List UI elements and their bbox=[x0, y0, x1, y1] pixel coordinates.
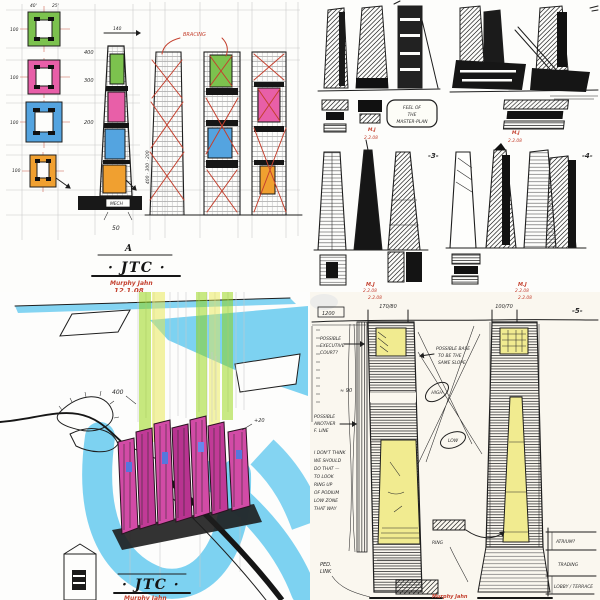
note-line: THAT WAY bbox=[314, 506, 337, 512]
base-dim: 50 bbox=[112, 225, 120, 232]
note-ped-2: LINK bbox=[320, 569, 332, 575]
note-line: I DON'T THINK bbox=[314, 450, 347, 456]
elev-dim-300: 300 bbox=[84, 78, 94, 84]
sig-date-2: 2.2.08 bbox=[508, 138, 522, 144]
group3-label: -3- bbox=[428, 152, 439, 160]
dim-left-tower: 170/80 bbox=[379, 304, 397, 310]
quadrant-tower-sections: 2.2.08 2.2.08 1200 170/80 100/70 -5- POS… bbox=[310, 292, 600, 600]
sheet-number: -5- bbox=[572, 307, 583, 315]
firm-name: Murphy Jahn bbox=[110, 280, 153, 287]
margin-note-atrium: ATRIUM? bbox=[555, 539, 576, 545]
note-line: RING UP bbox=[314, 482, 333, 488]
yellow-shaft bbox=[209, 292, 220, 432]
margin-note-trading: TRADING bbox=[558, 562, 579, 568]
project-title: · JTC · bbox=[108, 260, 166, 276]
braced-tower-strips: BRACING bbox=[145, 32, 302, 215]
box-note-line3: MASTER-PLAN bbox=[396, 119, 428, 125]
note-line: LOW ZONE bbox=[314, 498, 338, 504]
signature-3: M.J bbox=[366, 282, 375, 288]
top-date-left: 2.2.08 bbox=[368, 295, 382, 301]
yellow-shaft bbox=[152, 292, 165, 442]
floor-dim-3: 100 bbox=[10, 120, 19, 126]
firm-name: Murphy Jahn bbox=[124, 595, 167, 600]
note-exec-1: POSSIBLE bbox=[320, 336, 341, 342]
elev-dim-200: 200 bbox=[84, 120, 94, 126]
green-shaft bbox=[222, 292, 233, 420]
series-letter: A bbox=[124, 244, 132, 254]
podium-label: MECH bbox=[110, 201, 124, 207]
box-note-line2: THE bbox=[408, 112, 417, 118]
floor-plan-blue bbox=[26, 102, 62, 142]
plan-dim-25: 25' bbox=[52, 3, 59, 9]
quadrant-aerial-sketch: 400 +20 · JTC · Murphy Jahn 12.1.08 bbox=[0, 292, 310, 600]
word-ring: RING bbox=[432, 540, 444, 546]
datum-label: 1200 bbox=[322, 311, 335, 317]
note-line: OF PODIUM bbox=[314, 490, 339, 496]
margin-note-lobby: LOBBY / TERRACE bbox=[554, 584, 593, 590]
masterplan-note-box: FEEL OF THE MASTER-PLAN bbox=[387, 100, 437, 127]
green-shaft bbox=[196, 292, 207, 424]
floor-dim-4: 100 bbox=[12, 168, 21, 174]
yellow-window-top bbox=[376, 328, 406, 356]
signature-2: M.J bbox=[512, 130, 520, 136]
dim-20: +20 bbox=[254, 418, 265, 424]
signature-4: M.J bbox=[518, 282, 527, 288]
note-line: WE SHOULD bbox=[314, 458, 342, 464]
dim-right-tower: 100/70 bbox=[495, 304, 513, 310]
base-flare bbox=[478, 547, 550, 592]
note-fline-1: POSSIBLE bbox=[314, 414, 335, 420]
note-fline-2: ANOTHER bbox=[313, 421, 336, 427]
note-exec-2: EXECUTIVE bbox=[320, 343, 345, 349]
elev-dim-400: 400 bbox=[84, 50, 94, 56]
blue-window bbox=[208, 128, 232, 158]
floor-plan-green bbox=[28, 12, 60, 46]
bracing-note: BRACING bbox=[183, 32, 206, 38]
stacked-bars-study bbox=[501, 100, 568, 129]
green-shaft bbox=[139, 292, 151, 434]
note-base-2: TO BE THE bbox=[438, 353, 462, 359]
quadrant-plans-elevations: 40' 25' 100 100 100 100 140 MECH 50 400 … bbox=[0, 0, 310, 292]
oval-low-label: LOW bbox=[448, 438, 459, 444]
hatched-podium-box bbox=[396, 580, 438, 594]
dim-400: 400 bbox=[112, 389, 124, 396]
hatched-label-box bbox=[433, 520, 465, 530]
floor-dim-2: 100 bbox=[10, 75, 19, 81]
yellow-window-top bbox=[500, 328, 528, 354]
top-date-right: 2.2.08 bbox=[518, 295, 532, 301]
note-ped-1: PED. bbox=[320, 562, 332, 568]
signature-1: M.J bbox=[368, 127, 376, 133]
project-title: · JTC · bbox=[122, 577, 180, 593]
floor-plan-pink bbox=[28, 60, 60, 94]
top-width-dim: 140 bbox=[113, 26, 122, 32]
yellow-zone bbox=[378, 440, 420, 544]
oval-high-label: HIGH bbox=[431, 390, 443, 396]
side-dims-rotated: 400 · 300 · 200 bbox=[145, 150, 151, 184]
sketch-collage: 40' 25' 100 100 100 100 140 MECH 50 400 … bbox=[0, 0, 600, 600]
left-tower-section bbox=[357, 322, 422, 592]
note-exec-3: COURT? bbox=[320, 350, 338, 356]
dim-90: ≈ 90 bbox=[340, 388, 352, 394]
floor-dim-1: 100 bbox=[10, 27, 19, 33]
box-note-line1: FEEL OF bbox=[403, 105, 421, 111]
group4-label: -4- bbox=[582, 152, 593, 160]
note-fline-3: F. LINE bbox=[314, 428, 329, 434]
firm-name: Murphy Jahn bbox=[432, 594, 468, 600]
paper-smudge bbox=[310, 294, 338, 310]
plan-dim-40: 40' bbox=[30, 3, 37, 9]
note-line: TO LOOK bbox=[314, 474, 335, 480]
quadrant-massing-studies: M.J 2.2.08 M.J 2.2.08 FEEL OF THE MASTER… bbox=[310, 0, 600, 292]
note-line: DO THAT — bbox=[314, 466, 340, 472]
